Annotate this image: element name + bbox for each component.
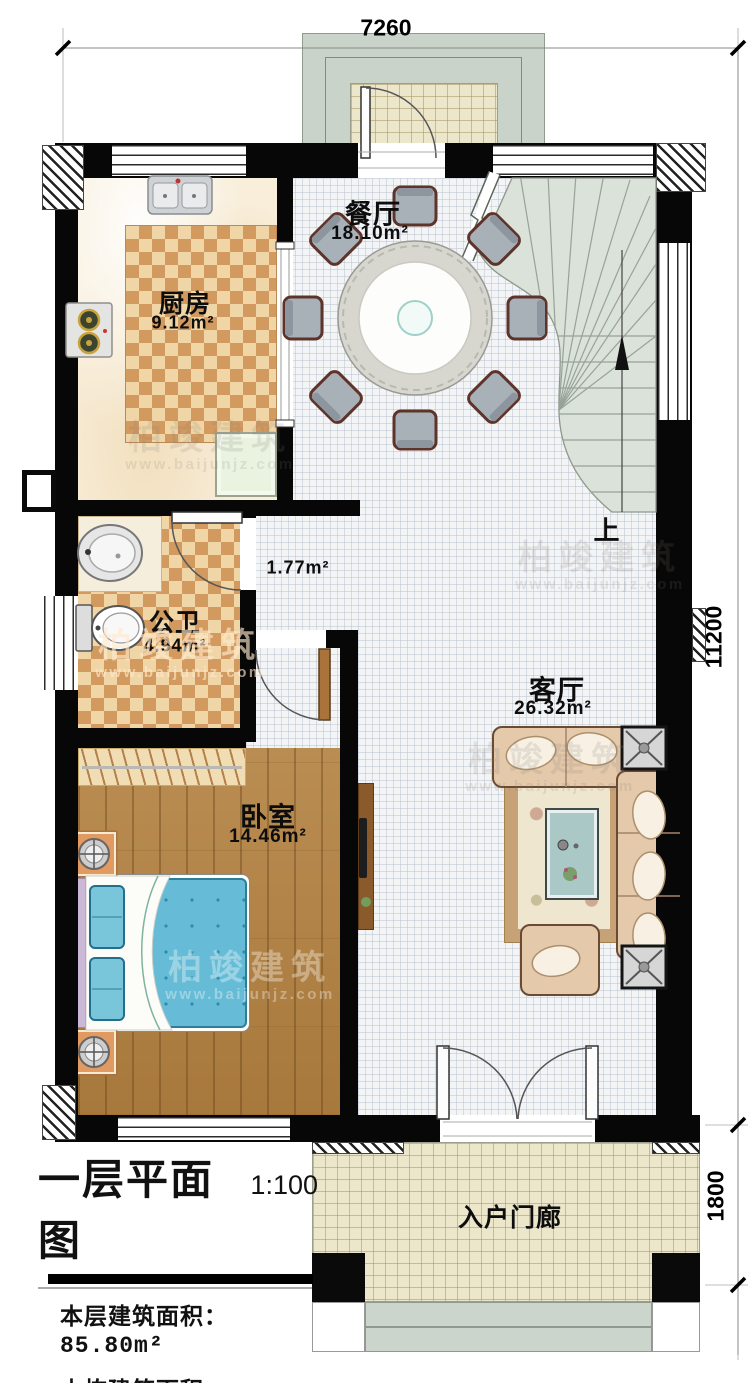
bedroom-door-leaf: [319, 649, 330, 720]
title-block: 一层平面图 1:100 本层建筑面积：85.80m² 本栋建筑面积：235.22…: [38, 1146, 318, 1383]
living-details: [359, 727, 680, 988]
dim-porch: 1800: [703, 1170, 730, 1221]
dim-side: 11200: [701, 606, 728, 669]
title-underline: [48, 1274, 313, 1284]
bathroom-label: 公卫: [149, 603, 201, 639]
main-door-swing-left: [443, 1048, 517, 1119]
toilet-tank: [76, 605, 92, 651]
hall-area: 1.77m²: [266, 558, 329, 579]
plan-scale: 1:100: [250, 1170, 318, 1201]
bathroom-door-leaf: [172, 512, 242, 523]
main-door-swing-right: [518, 1048, 592, 1119]
plant: [361, 897, 371, 907]
title-underline-thin: [38, 1287, 312, 1289]
stats-list: 本层建筑面积：85.80m² 本栋建筑面积：235.22m² 占地面积：85.8…: [60, 1297, 318, 1383]
floor-plan: 餐厅 18.10m² 厨房 9.12m² 公卫 4.94m² 1.77m² 客厅…: [0, 0, 750, 1383]
bedroom-door-swing: [256, 650, 326, 720]
bathroom-area: 4.94m²: [143, 636, 206, 657]
stat-floor-area: 本层建筑面积：85.80m²: [60, 1297, 318, 1359]
stat-label: 本层建筑面积：: [60, 1303, 228, 1329]
entry-porch-label: 入户门廊: [458, 1198, 562, 1234]
kitchen-door-jamb-bottom: [276, 420, 294, 427]
dim-top: 7260: [360, 15, 411, 42]
bed-details: [79, 839, 172, 1067]
bathroom-door-swing: [172, 521, 241, 590]
stat-value: 85.80m²: [60, 1333, 164, 1359]
plan-title: 一层平面图: [38, 1146, 232, 1268]
stair-up-label: 上: [593, 511, 620, 548]
dining-table-set: [284, 187, 546, 449]
living-area: 26.32m²: [514, 698, 592, 720]
side-table-top: [622, 727, 666, 769]
back-door-leaf: [361, 87, 370, 158]
bedroom-area: 14.46m²: [229, 826, 307, 848]
side-table-bottom: [622, 946, 666, 988]
back-door-swing: [366, 88, 436, 158]
stat-building-area: 本栋建筑面积：235.22m²: [60, 1371, 318, 1383]
dining-area: 18.10m²: [331, 223, 409, 245]
kitchen-door-jamb-top: [276, 242, 294, 249]
kitchen-area: 9.12m²: [151, 313, 214, 334]
stat-label: 本栋建筑面积：: [60, 1377, 228, 1383]
main-door-leaf-left: [437, 1046, 449, 1119]
tv: [359, 818, 367, 878]
bathroom-fixtures: [76, 525, 144, 651]
main-door-leaf-right: [586, 1046, 598, 1119]
